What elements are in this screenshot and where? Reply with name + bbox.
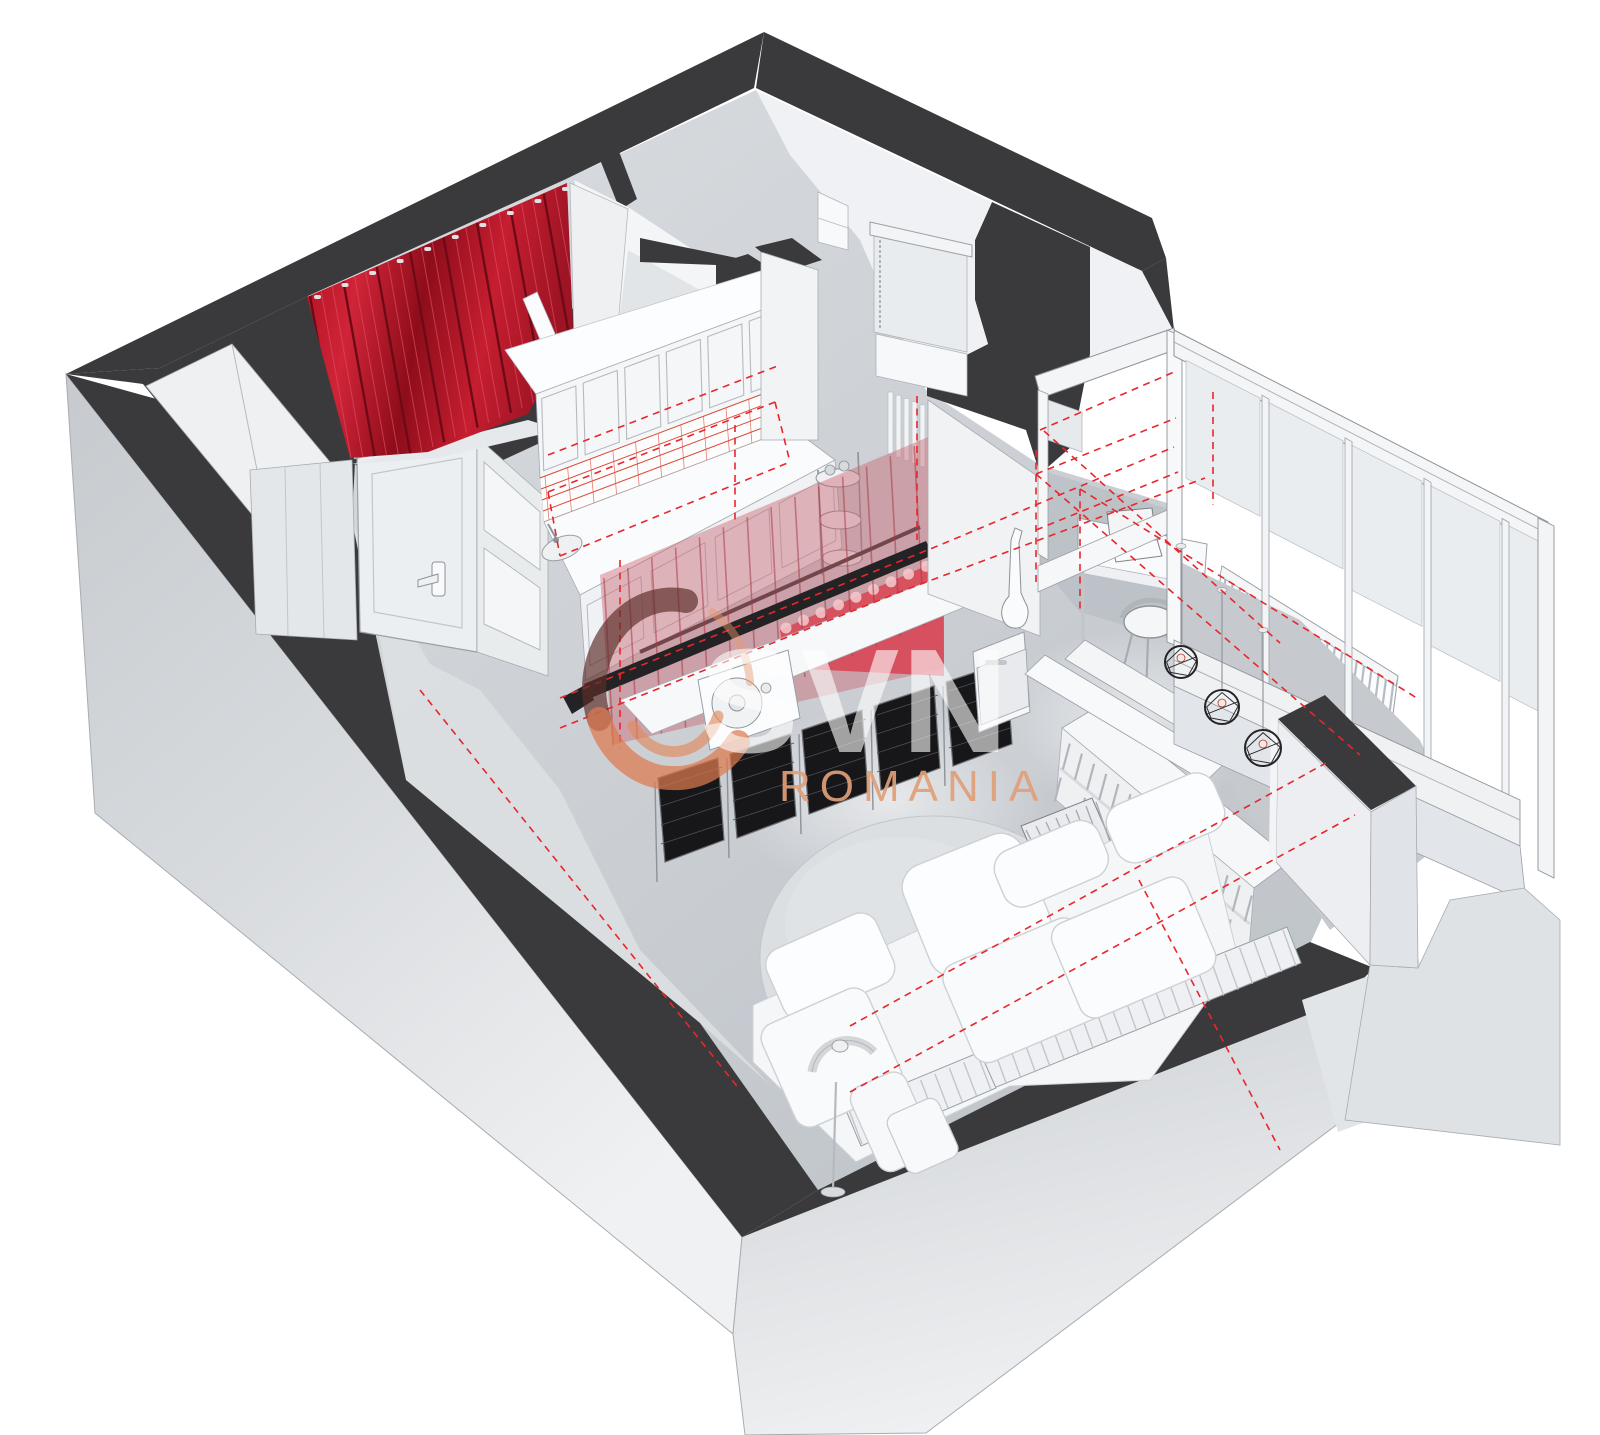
svg-text:ROMANIA: ROMANIA: [779, 762, 1047, 811]
svg-text:SVN: SVN: [700, 619, 1010, 784]
